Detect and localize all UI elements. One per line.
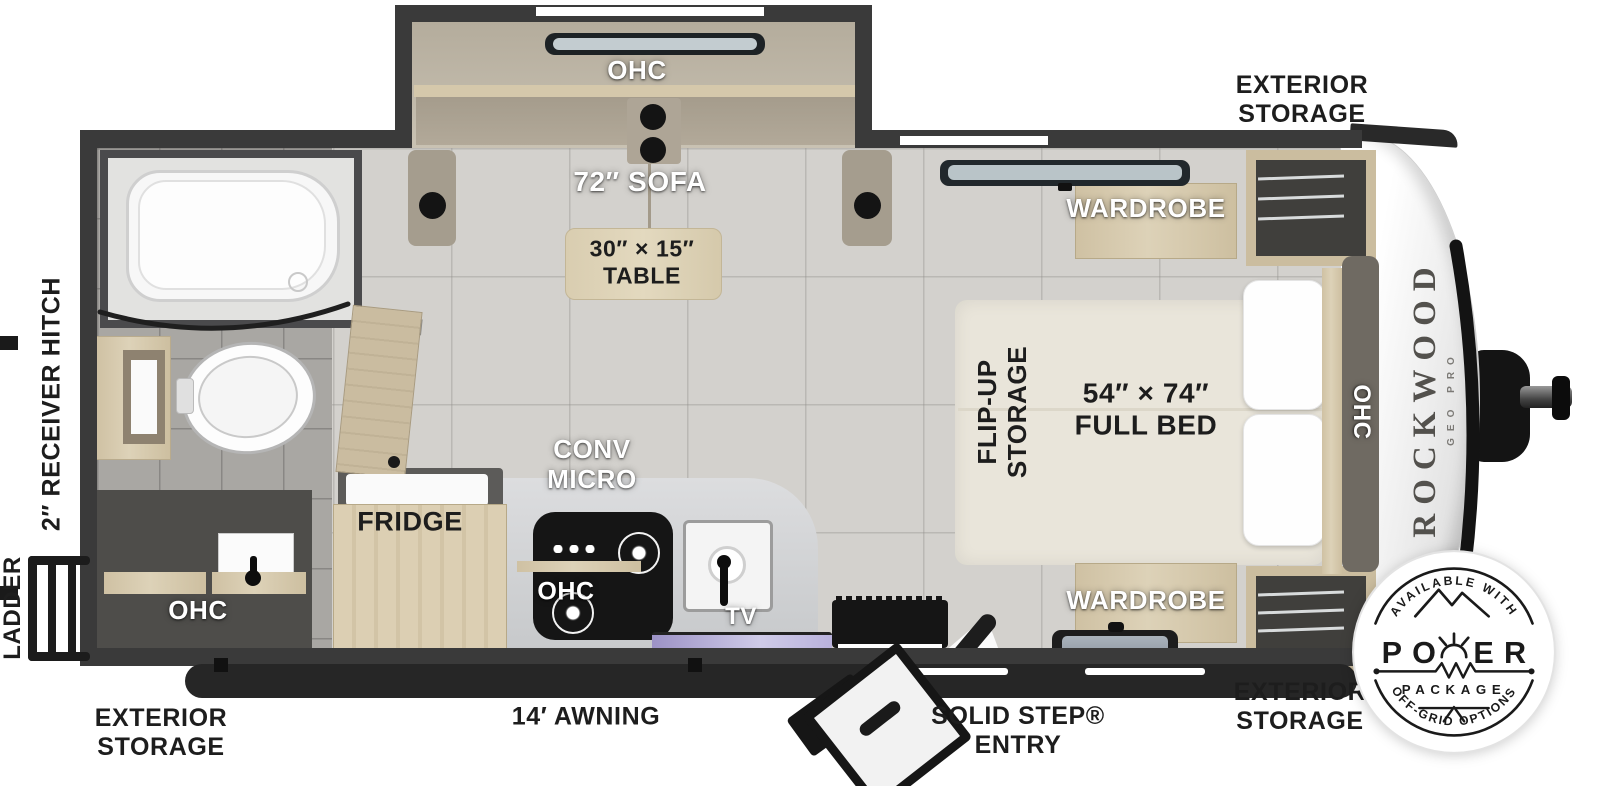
label-ladder: LADDER: [0, 556, 27, 660]
label-exterior-storage-top-right: EXTERIOR STORAGE: [1236, 71, 1369, 129]
label-table: 30″ × 15″ TABLE: [590, 235, 695, 288]
brand-name: ROCKWOOD: [1407, 258, 1444, 537]
bathtub-drain: [288, 272, 308, 292]
cupholder-right: [854, 192, 881, 219]
slide-window-glass: [553, 38, 757, 50]
window-strip-top: [900, 136, 1048, 145]
floor-hatch-knob: [1108, 622, 1124, 632]
label-sofa: 72″ SOFA: [573, 166, 706, 198]
console-cupholder-2: [640, 137, 666, 163]
label-tv: TV: [725, 603, 757, 631]
pillow-top: [1243, 280, 1325, 410]
ladder-rung-2: [68, 556, 76, 661]
ladder-rung-1: [48, 556, 56, 661]
awning-bracket-2: [688, 658, 702, 672]
bed-window-glass: [948, 165, 1182, 180]
fridge-lid: [346, 474, 488, 506]
headboard: [1322, 268, 1342, 574]
floorplan: ROCKWOOD GEO PRO: [0, 0, 1600, 786]
label-exterior-storage-bottom-left: EXTERIOR STORAGE: [95, 704, 228, 762]
label-ohc-slide: OHC: [607, 55, 667, 85]
bath-counter-left: [104, 572, 206, 594]
label-fridge: FRIDGE: [357, 506, 463, 537]
label-ohc-kitchen: OHC: [537, 578, 594, 607]
power-package-badge: AVAILABLE WITH PO ER PACKAGE OFF-GRID OP…: [1350, 548, 1558, 756]
wall-top-left: [80, 130, 402, 148]
bed-window-latch: [1058, 183, 1072, 191]
cooktop-knobs: [552, 545, 596, 553]
window-strip-bottom-2: [1085, 668, 1205, 675]
label-exterior-storage-bottom-right: EXTERIOR STORAGE: [1234, 678, 1367, 736]
ladder-rail-top: [28, 556, 90, 565]
vanity-mirror: [131, 360, 157, 434]
kitchen-ohc-shelf: [517, 561, 641, 572]
label-receiver-hitch: 2″ RECEIVER HITCH: [38, 277, 67, 531]
furnace: [832, 600, 948, 648]
shower-curtain-track: [96, 298, 352, 350]
ladder-rail-bottom: [28, 652, 90, 661]
slide-out-wall-right: [855, 5, 872, 148]
bath-faucet-spout: [250, 556, 257, 576]
cupholder-left: [419, 192, 446, 219]
awning-bracket-1: [214, 658, 228, 672]
console-cupholder-1: [640, 104, 666, 130]
sink-faucet-neck: [720, 562, 728, 606]
label-solid-step-entry: SOLID STEP® ENTRY: [931, 702, 1105, 760]
label-flip-up-storage: FLIP-UP STORAGE: [972, 346, 1032, 478]
label-ohc-bath: OHC: [168, 595, 228, 625]
label-conv-micro: CONV MICRO: [547, 434, 637, 494]
badge-power-left: PO: [1382, 636, 1447, 670]
slide-window-strip: [536, 7, 764, 16]
label-wardrobe-bottom: WARDROBE: [1066, 585, 1225, 615]
furnace-ribs: [836, 596, 944, 606]
sofa-shelf: [414, 85, 858, 97]
rear-jack-stub-1: [0, 336, 18, 350]
storage-cabinet-top: [1246, 150, 1376, 266]
label-ohc-bed: OHC: [1347, 384, 1375, 439]
label-awning: 14′ AWNING: [512, 703, 661, 732]
slide-out-wall-left: [395, 5, 412, 148]
hitch-coupler: [1552, 376, 1570, 420]
label-full-bed: 54″ × 74″ FULL BED: [1075, 378, 1218, 443]
pillow-bottom: [1243, 414, 1325, 546]
door-handle: [388, 456, 400, 468]
toilet-hinge: [176, 378, 194, 414]
badge-package-text: PACKAGE: [1402, 682, 1507, 697]
badge-power-right: ER: [1473, 636, 1536, 670]
ladder-stile-outer: [28, 556, 37, 661]
wall-rear: [80, 130, 97, 666]
label-wardrobe-top: WARDROBE: [1066, 193, 1225, 223]
